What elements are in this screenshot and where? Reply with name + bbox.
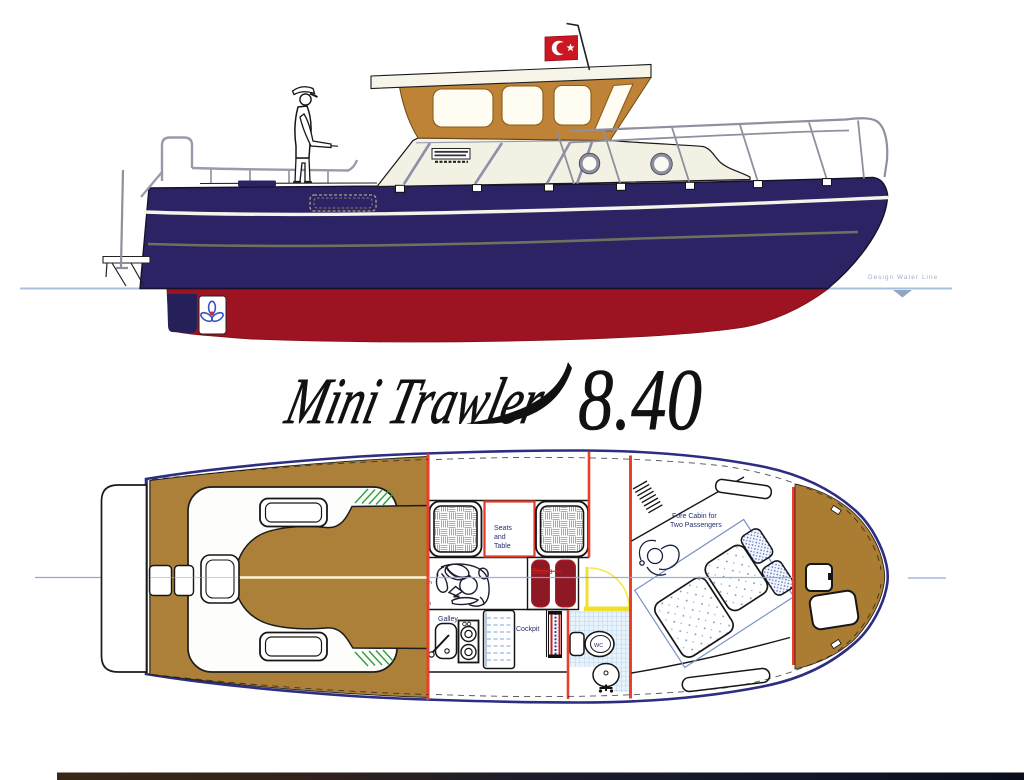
svg-text:Seats: Seats <box>494 525 512 532</box>
svg-text:WC: WC <box>594 643 603 649</box>
svg-text:8.40: 8.40 <box>578 352 702 449</box>
svg-text:Table: Table <box>494 543 511 550</box>
svg-text:and: and <box>494 534 506 541</box>
svg-text:Two Passengers: Two Passengers <box>670 522 722 529</box>
svg-text:Design Water Line: Design Water Line <box>868 274 938 281</box>
svg-text:Cockpit: Cockpit <box>516 626 539 633</box>
svg-text:Galley: Galley <box>438 616 458 623</box>
svg-text:Mini Trawler: Mini Trawler <box>279 365 553 438</box>
svg-text:Fore Cabin for: Fore Cabin for <box>672 513 717 520</box>
